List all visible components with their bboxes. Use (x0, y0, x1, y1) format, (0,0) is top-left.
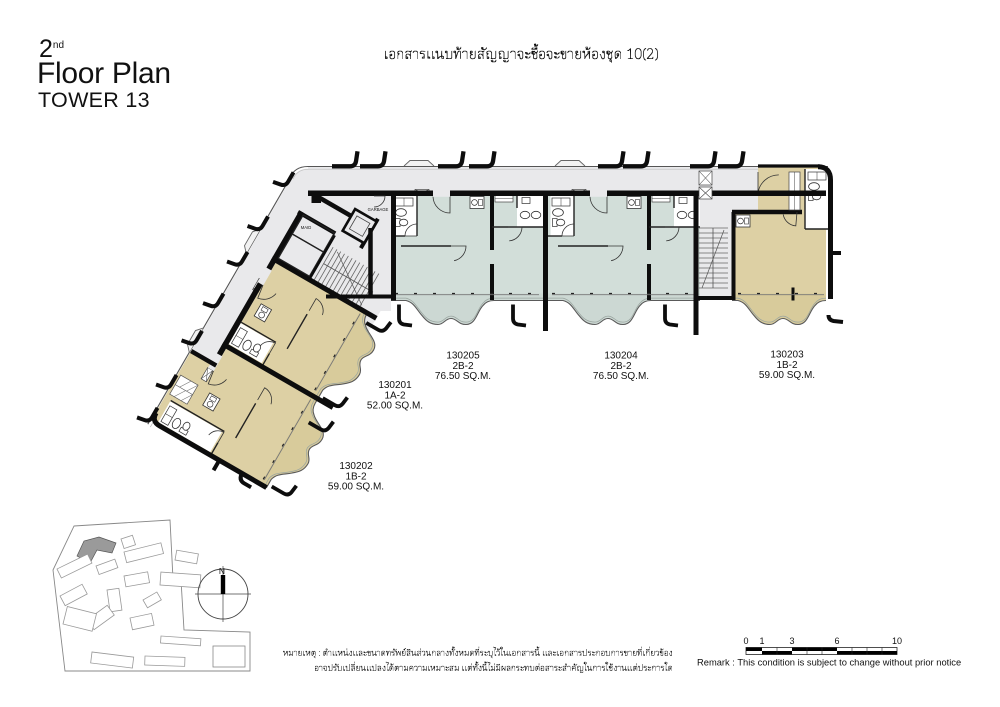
svg-text:Floor Plan: Floor Plan (37, 57, 171, 90)
svg-text:0: 0 (743, 636, 748, 646)
svg-text:10: 10 (892, 636, 902, 646)
svg-text:MAID: MAID (301, 225, 311, 230)
svg-text:N: N (219, 566, 225, 576)
svg-text:TOWER 13: TOWER 13 (38, 88, 150, 112)
svg-text:1: 1 (759, 636, 764, 646)
svg-text:GARBAGE: GARBAGE (368, 207, 389, 212)
svg-text:6: 6 (834, 636, 839, 646)
svg-text:Remark : This condition is sub: Remark : This condition is subject to ch… (697, 658, 961, 668)
svg-text:3: 3 (789, 636, 794, 646)
